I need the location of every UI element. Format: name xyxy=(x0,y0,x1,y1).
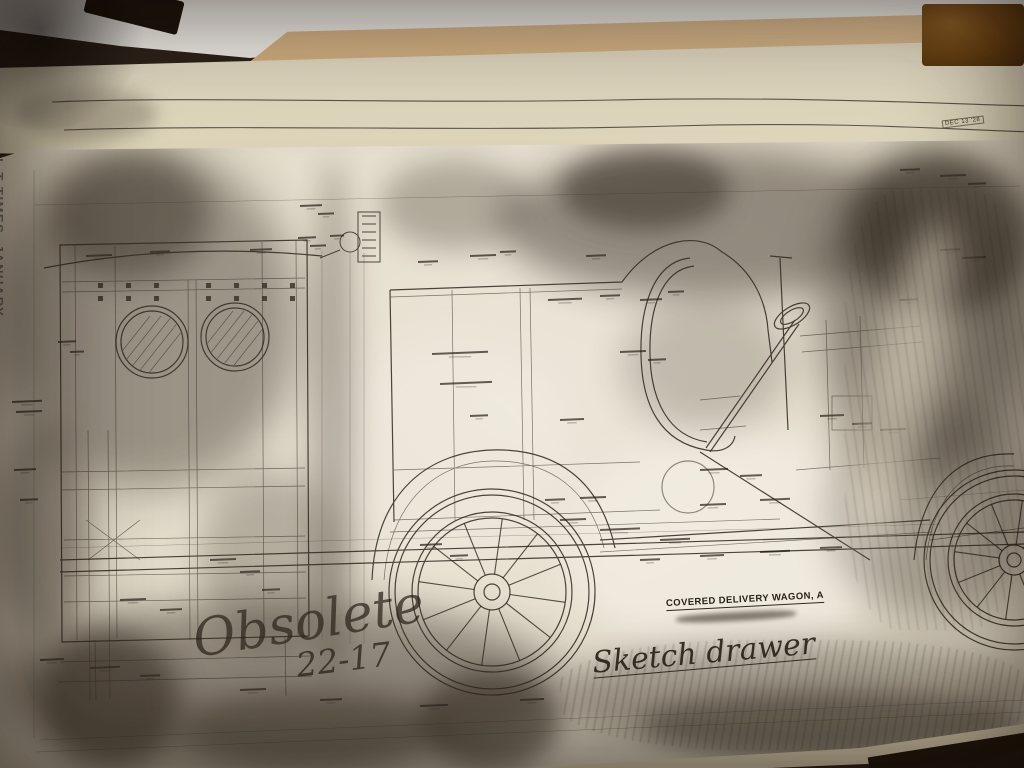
smudge-texture xyxy=(420,670,560,768)
crackle-texture xyxy=(560,640,1024,750)
stained-paper-corner xyxy=(922,4,1024,66)
smudge-texture xyxy=(200,470,340,650)
smudge-texture xyxy=(50,150,210,280)
crackle-texture xyxy=(845,190,1024,630)
smudge-texture xyxy=(0,420,90,640)
photo-of-blueprint: DEC 13 '28 xyxy=(0,0,1024,768)
smudge-texture xyxy=(560,150,730,230)
smudge-texture xyxy=(380,160,530,250)
smudge-texture xyxy=(40,630,180,768)
smudge-texture xyxy=(180,690,440,768)
smudge-texture xyxy=(620,300,790,430)
